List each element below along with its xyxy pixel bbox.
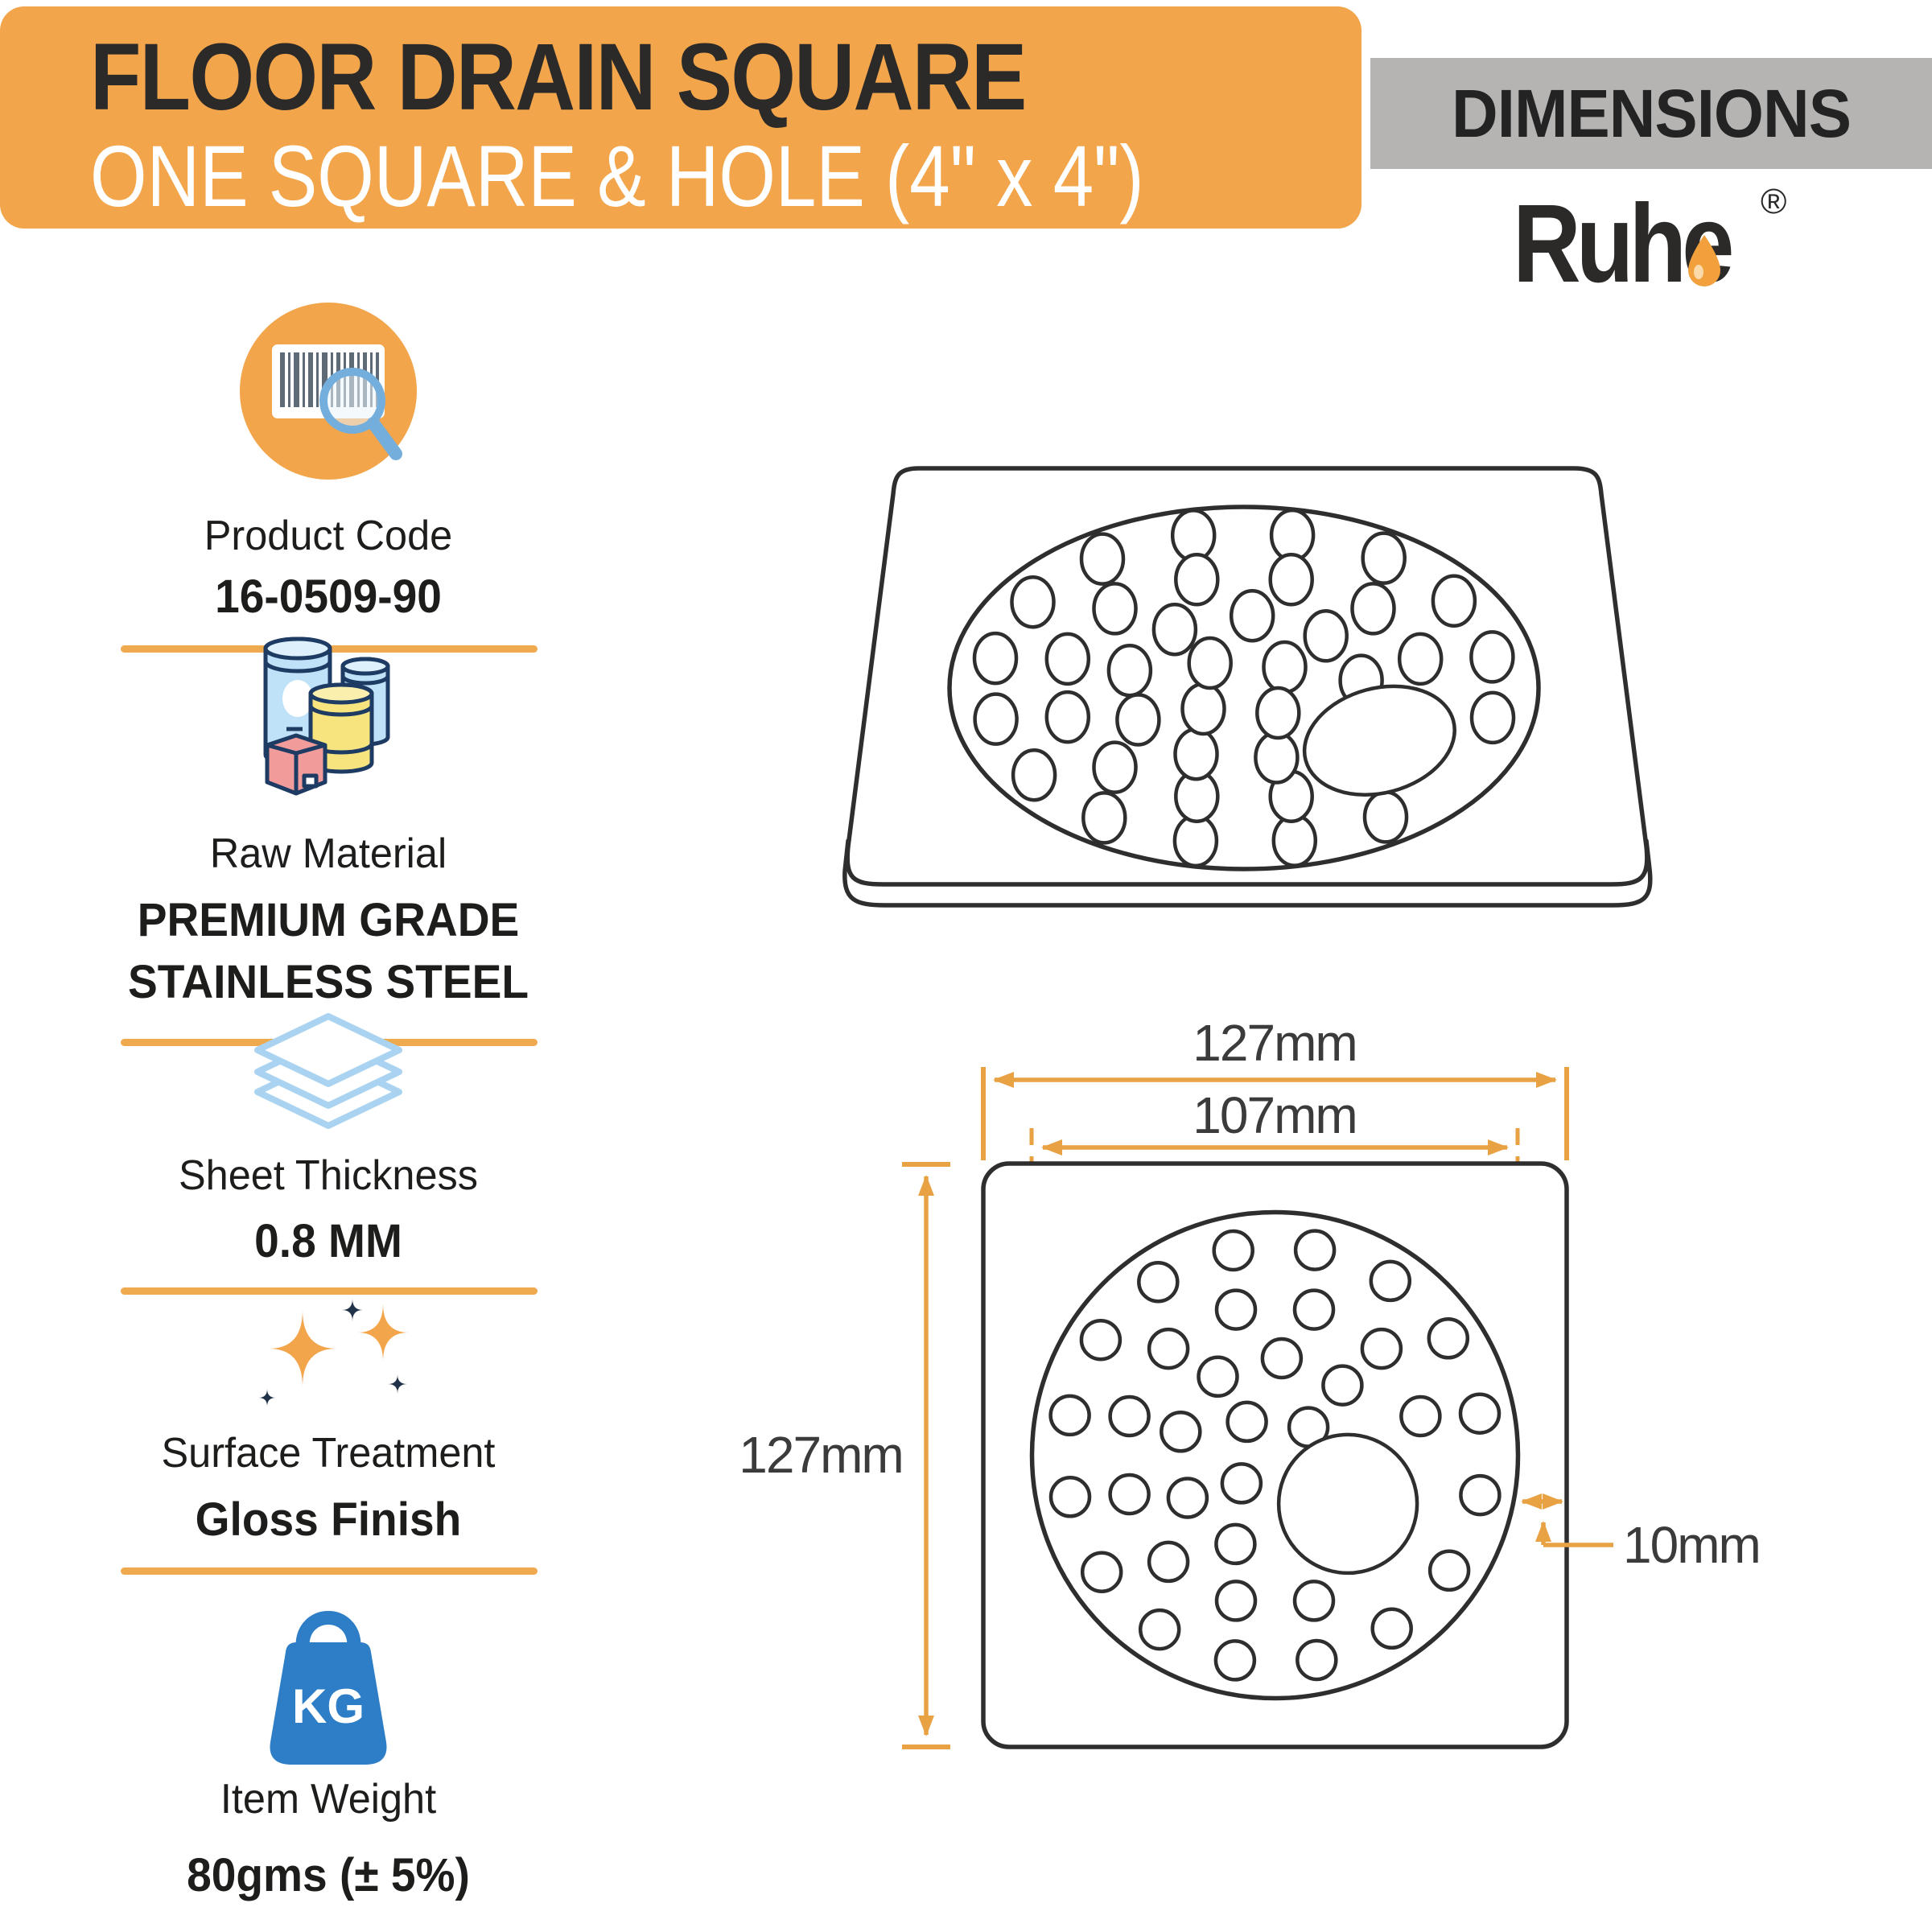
- spec-value: 16-0509-90: [92, 570, 566, 624]
- drain-hole: [1110, 1475, 1149, 1514]
- drain-hole: [1255, 733, 1297, 783]
- drain-hole: [1296, 1231, 1334, 1270]
- drain-hole: [1183, 684, 1225, 734]
- spec-value: 80gms (± 5%): [92, 1848, 566, 1902]
- drain-big-hole: [1279, 1435, 1417, 1573]
- drain-hole: [1176, 729, 1217, 779]
- spec-label: Surface Treatment: [86, 1429, 570, 1477]
- drain-hole: [1228, 1403, 1267, 1441]
- drain-hole: [1295, 1291, 1333, 1329]
- dim-outer-width-label: 127mm: [1193, 1014, 1356, 1072]
- drain-hole: [1471, 632, 1513, 682]
- drain-hole: [1047, 692, 1089, 742]
- drain-hole: [1297, 1641, 1336, 1679]
- drain-hole: [1263, 1339, 1301, 1378]
- spec-value: PREMIUM GRADE: [92, 893, 566, 947]
- droplet-icon: [1687, 233, 1722, 290]
- spec-value: Gloss Finish: [92, 1493, 566, 1547]
- drain-hole: [1082, 1553, 1121, 1592]
- drain-hole: [1083, 793, 1125, 842]
- drain-hole: [1199, 1357, 1238, 1396]
- drain-hole: [1051, 1477, 1090, 1516]
- spec-label: Raw Material: [86, 830, 570, 878]
- kg-weight-icon: KG: [252, 1596, 405, 1771]
- material-containers-icon: [248, 624, 409, 805]
- registered-mark: ®: [1761, 182, 1786, 222]
- drain-hole: [1430, 1551, 1469, 1590]
- drain-hole: [1109, 645, 1151, 695]
- divider: [121, 1287, 538, 1295]
- drain-hole: [1176, 554, 1217, 604]
- drain-hole: [1353, 583, 1394, 633]
- spec-item-surface-treatment: [240, 1296, 417, 1414]
- drain-hole: [1217, 1581, 1255, 1620]
- sheet-stack-icon: [244, 1008, 413, 1139]
- drain-hole: [1271, 510, 1313, 560]
- spec-item-item-weight: KG: [252, 1596, 405, 1775]
- drain-hole: [1401, 1397, 1440, 1436]
- drain-hole: [975, 694, 1017, 744]
- drain-hole: [1047, 634, 1089, 684]
- drain-hole: [1429, 1319, 1468, 1357]
- dim-inner-width-label: 107mm: [1193, 1086, 1356, 1144]
- drain-hole: [1081, 1320, 1120, 1359]
- drain-hole: [1110, 1397, 1149, 1436]
- spec-label: Sheet Thickness: [86, 1151, 570, 1200]
- drain-hole: [1051, 1396, 1090, 1435]
- drain-hole: [1139, 1263, 1177, 1301]
- brand-logo: Ruhe ®: [1513, 180, 1851, 301]
- drain-hole: [1472, 693, 1514, 743]
- spec-label: Product Code: [86, 512, 570, 560]
- spec-item-raw-material: [248, 624, 409, 809]
- svg-text:KG: KG: [292, 1679, 365, 1733]
- spec-label: Item Weight: [86, 1775, 570, 1823]
- drain-hole: [1012, 577, 1054, 627]
- drain-hole: [1264, 642, 1306, 692]
- spec-value: STAINLESS STEEL: [92, 955, 566, 1009]
- drain-hole: [1214, 1231, 1253, 1270]
- spec-item-sheet-thickness: [244, 1008, 413, 1143]
- drain-hole: [1189, 638, 1231, 688]
- drain-hole: [1140, 1610, 1179, 1649]
- drain-hole: [1373, 1609, 1411, 1648]
- title-banner: FLOOR DRAIN SQUARE ONE SQUARE & HOLE (4"…: [0, 6, 1361, 229]
- drain-hole: [1460, 1394, 1499, 1433]
- drain-hole: [1222, 1464, 1261, 1502]
- drain-hole: [1172, 510, 1214, 560]
- drain-hole: [1399, 634, 1441, 684]
- drain-hole: [1216, 1525, 1254, 1563]
- drain-hole: [1217, 1291, 1255, 1329]
- barcode-search-icon: [232, 296, 425, 489]
- drain-hole: [1013, 750, 1055, 800]
- drain-hole: [1175, 816, 1217, 866]
- drain-hole: [1081, 534, 1123, 584]
- strainer-circle: [1032, 1213, 1518, 1699]
- drain-hole: [1323, 1366, 1361, 1405]
- spec-item-product-code: [232, 296, 425, 493]
- drain-hole: [1149, 1329, 1188, 1368]
- drain-hole: [1365, 792, 1407, 842]
- page-title: FLOOR DRAIN SQUARE: [90, 23, 1025, 132]
- drain-hole: [1154, 604, 1196, 654]
- drain-hole: [1371, 1262, 1410, 1300]
- drain-hole: [1295, 1581, 1333, 1620]
- dimensions-banner-label: DIMENSIONS: [1452, 75, 1851, 153]
- drain-hole: [1271, 554, 1312, 604]
- dim-edge-offset-label: 10mm: [1623, 1516, 1760, 1574]
- drain-hole: [1117, 695, 1159, 745]
- drain-hole: [974, 633, 1016, 683]
- drain-hole: [1362, 1329, 1401, 1368]
- drain-hole: [1094, 583, 1136, 633]
- drain-hole: [1216, 1641, 1254, 1679]
- dimensions-banner: DIMENSIONS: [1370, 58, 1932, 169]
- drain-hole: [1168, 1479, 1207, 1518]
- floor-drain-perspective-view: [805, 435, 1722, 950]
- drain-hole: [1433, 576, 1475, 626]
- floor-drain-top-view-dimensions: 127mm 107mm 127mm 10mm: [700, 990, 1827, 1794]
- drain-hole: [1094, 743, 1136, 793]
- drain-hole: [1149, 1543, 1188, 1581]
- dim-outer-height-label: 127mm: [739, 1426, 902, 1484]
- strainer-circle: [950, 507, 1539, 869]
- drain-hole: [1460, 1476, 1499, 1514]
- drain-hole: [1305, 611, 1347, 661]
- drain-hole: [1363, 533, 1405, 583]
- spec-value: 0.8 MM: [92, 1214, 566, 1268]
- drain-hole: [1231, 591, 1273, 641]
- drain-hole: [1257, 688, 1299, 738]
- drain-hole: [1274, 816, 1316, 866]
- drain-hole: [1161, 1412, 1200, 1451]
- page-subtitle: ONE SQUARE & HOLE (4" x 4"): [90, 126, 1144, 226]
- sparkles-icon: [240, 1296, 417, 1410]
- divider: [121, 1567, 538, 1575]
